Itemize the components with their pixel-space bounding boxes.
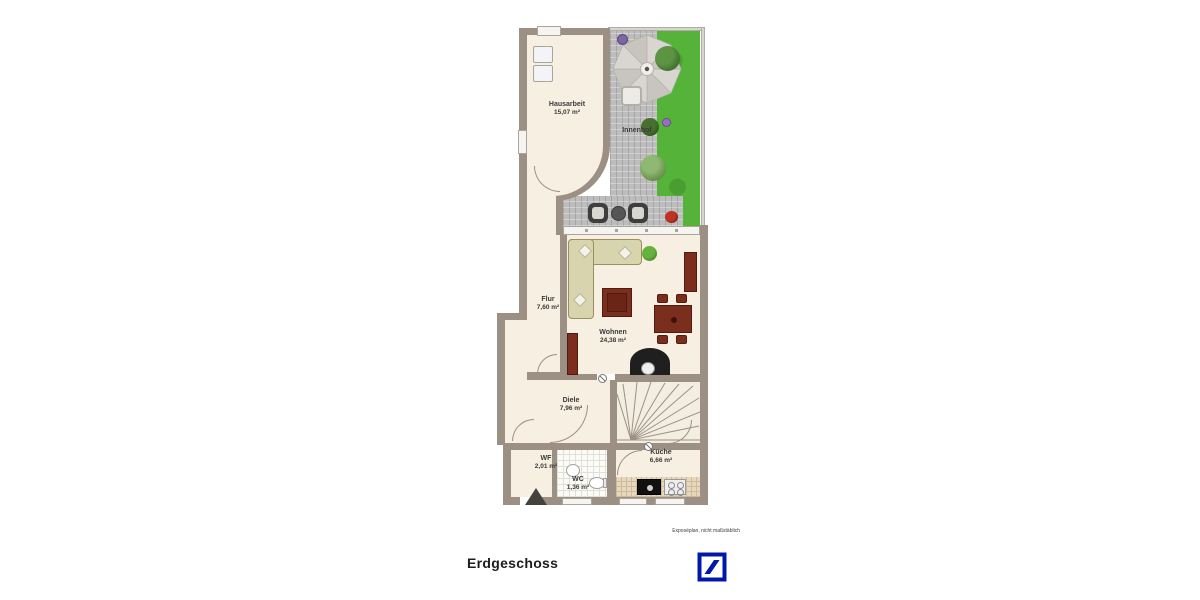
dining-chair [676,335,687,344]
cabinet [567,333,578,375]
window-bottom-kueche-1 [619,498,647,505]
window-top [537,26,561,36]
wall-right [700,225,708,505]
wall-flur-terrace [556,196,563,235]
window-left [518,130,527,154]
wall-left-lower [503,445,511,505]
wall-flur-wohnen [560,235,567,372]
red-flower-icon [665,211,678,223]
cooktop-icon [664,479,686,495]
coffee-table [602,288,632,317]
terrace-table [611,206,626,221]
wall-wohnen-diele-b [615,374,700,382]
toilet-tank [603,478,607,488]
courtyard-fence-right [701,27,705,228]
dryer-icon [533,65,553,82]
garden-bench [621,86,642,106]
terrace-chair [588,203,608,223]
spiral-staircase-post [641,362,655,375]
wall-jog [497,313,527,320]
dining-chair [676,294,687,303]
window-band-terrace [563,226,700,235]
sink-icon [566,464,580,477]
window-mullion [675,229,678,232]
window-bottom-kueche-2 [655,498,685,505]
wall-wc-kueche [607,450,616,497]
window-mullion [585,229,588,232]
entrance-arrow-icon [525,488,547,505]
window-mullion [645,229,648,232]
dining-chair [657,335,668,344]
wall-diele-stairs [610,380,617,450]
wall-top [519,28,610,35]
plan-disclaimer: Exposéplan, nicht maßstäblich [662,528,740,534]
deutsche-bank-logo [697,551,727,583]
wall-left-upper [519,28,527,320]
room-wc-floor [557,450,607,497]
flur-top-passage [527,196,556,235]
small-flower-icon [662,118,671,127]
bush-icon [655,46,680,71]
bush-icon [641,118,659,136]
wall-hausarbeit-right [603,28,610,128]
terrace-chair [628,203,648,223]
houseplant-icon [642,246,657,261]
dining-chair [657,294,668,303]
bush-icon [640,155,666,181]
wall-diele-bottom [503,443,700,450]
purple-plant-icon [617,34,628,45]
window-mullion [615,229,618,232]
sideboard [684,252,697,292]
window-bottom-wc [562,498,592,505]
door-symbol [644,442,653,451]
dining-table [654,305,692,333]
door-symbol [598,374,607,383]
room-flur-floor [527,235,560,372]
floorplan-canvas: Hausarbeit 15,07 m² Innenhof Flur 7,60 m… [0,0,1200,600]
floor-title: Erdgeschoss [467,555,558,571]
wall-left-bump [497,320,505,445]
courtyard-fence-top [608,27,705,31]
washer-icon [533,46,553,63]
kitchen-sink-icon [637,479,661,495]
